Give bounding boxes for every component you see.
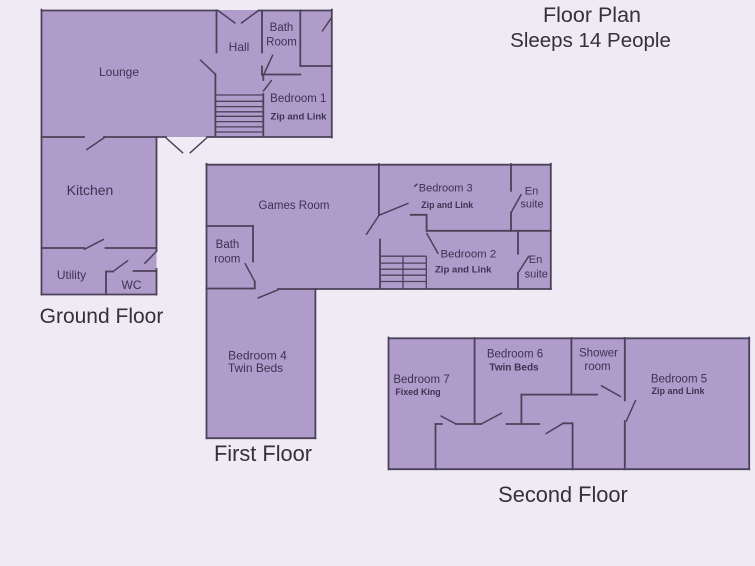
svg-text:Twin Beds: Twin Beds — [228, 361, 283, 375]
svg-text:WC: WC — [122, 278, 142, 292]
svg-text:Zip and Link: Zip and Link — [421, 200, 473, 210]
svg-text:Fixed King: Fixed King — [395, 387, 440, 397]
svg-text:Second Floor: Second Floor — [498, 482, 628, 507]
svg-text:En: En — [525, 186, 538, 198]
svg-text:Kitchen: Kitchen — [67, 182, 114, 198]
svg-text:suite: suite — [525, 269, 548, 281]
svg-text:room: room — [214, 253, 240, 265]
svg-text:Ground Floor: Ground Floor — [40, 305, 164, 328]
svg-text:Bedroom 6: Bedroom 6 — [487, 349, 543, 361]
svg-text:Bedroom 7: Bedroom 7 — [393, 374, 449, 386]
svg-text:Zip and Link: Zip and Link — [652, 386, 706, 396]
svg-text:Bedroom 1: Bedroom 1 — [270, 93, 326, 105]
svg-text:En: En — [529, 254, 542, 266]
svg-text:First Floor: First Floor — [214, 441, 312, 466]
svg-text:Shower: Shower — [579, 348, 618, 360]
svg-text:room: room — [584, 361, 610, 373]
svg-text:Lounge: Lounge — [99, 65, 139, 79]
svg-text:Bedroom 2: Bedroom 2 — [440, 249, 496, 261]
svg-text:Bath: Bath — [270, 22, 294, 34]
svg-text:Games Room: Games Room — [259, 200, 330, 212]
svg-text:Zip and Link: Zip and Link — [271, 111, 328, 122]
svg-text:suite: suite — [520, 199, 543, 211]
svg-text:Hall: Hall — [229, 40, 250, 54]
svg-text:Floor Plan: Floor Plan — [543, 3, 641, 27]
svg-text:Bedroom 3: Bedroom 3 — [419, 183, 473, 195]
svg-text:Utility: Utility — [57, 268, 86, 282]
svg-text:Sleeps 14 People: Sleeps 14 People — [510, 29, 671, 52]
svg-text:Bedroom 5: Bedroom 5 — [651, 374, 707, 386]
svg-text:Room: Room — [266, 37, 297, 49]
svg-text:Twin Beds: Twin Beds — [489, 363, 539, 374]
svg-text:Zip and Link: Zip and Link — [435, 265, 492, 276]
svg-text:Bath: Bath — [216, 239, 240, 251]
